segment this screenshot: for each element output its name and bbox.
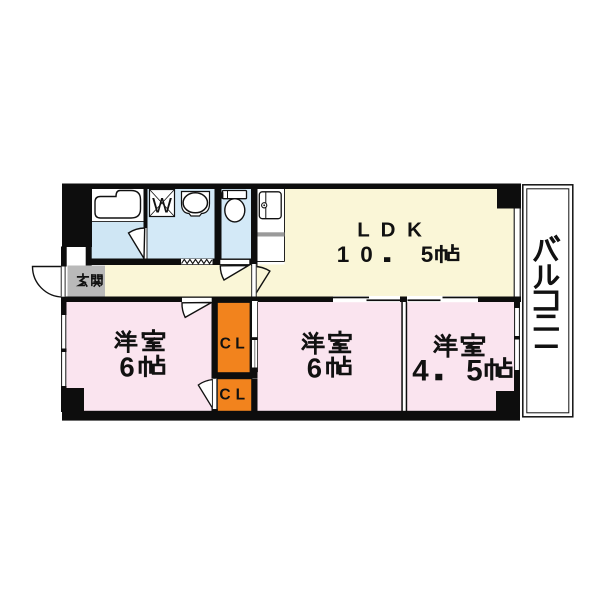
svg-text:5: 5 [466, 355, 482, 388]
svg-text:1: 1 [337, 242, 350, 267]
svg-text:D: D [381, 219, 396, 242]
svg-text:W: W [152, 195, 172, 218]
svg-text:6: 6 [307, 353, 322, 384]
svg-text:K: K [407, 219, 422, 242]
svg-text:L: L [357, 219, 370, 242]
svg-text:C: C [220, 335, 231, 352]
svg-text:C: C [219, 386, 230, 403]
svg-text:0: 0 [360, 242, 373, 267]
svg-text:4: 4 [412, 355, 429, 388]
svg-text:L: L [235, 335, 244, 352]
svg-text:L: L [236, 386, 245, 403]
svg-text:6: 6 [119, 352, 134, 383]
svg-text:5: 5 [421, 242, 434, 267]
